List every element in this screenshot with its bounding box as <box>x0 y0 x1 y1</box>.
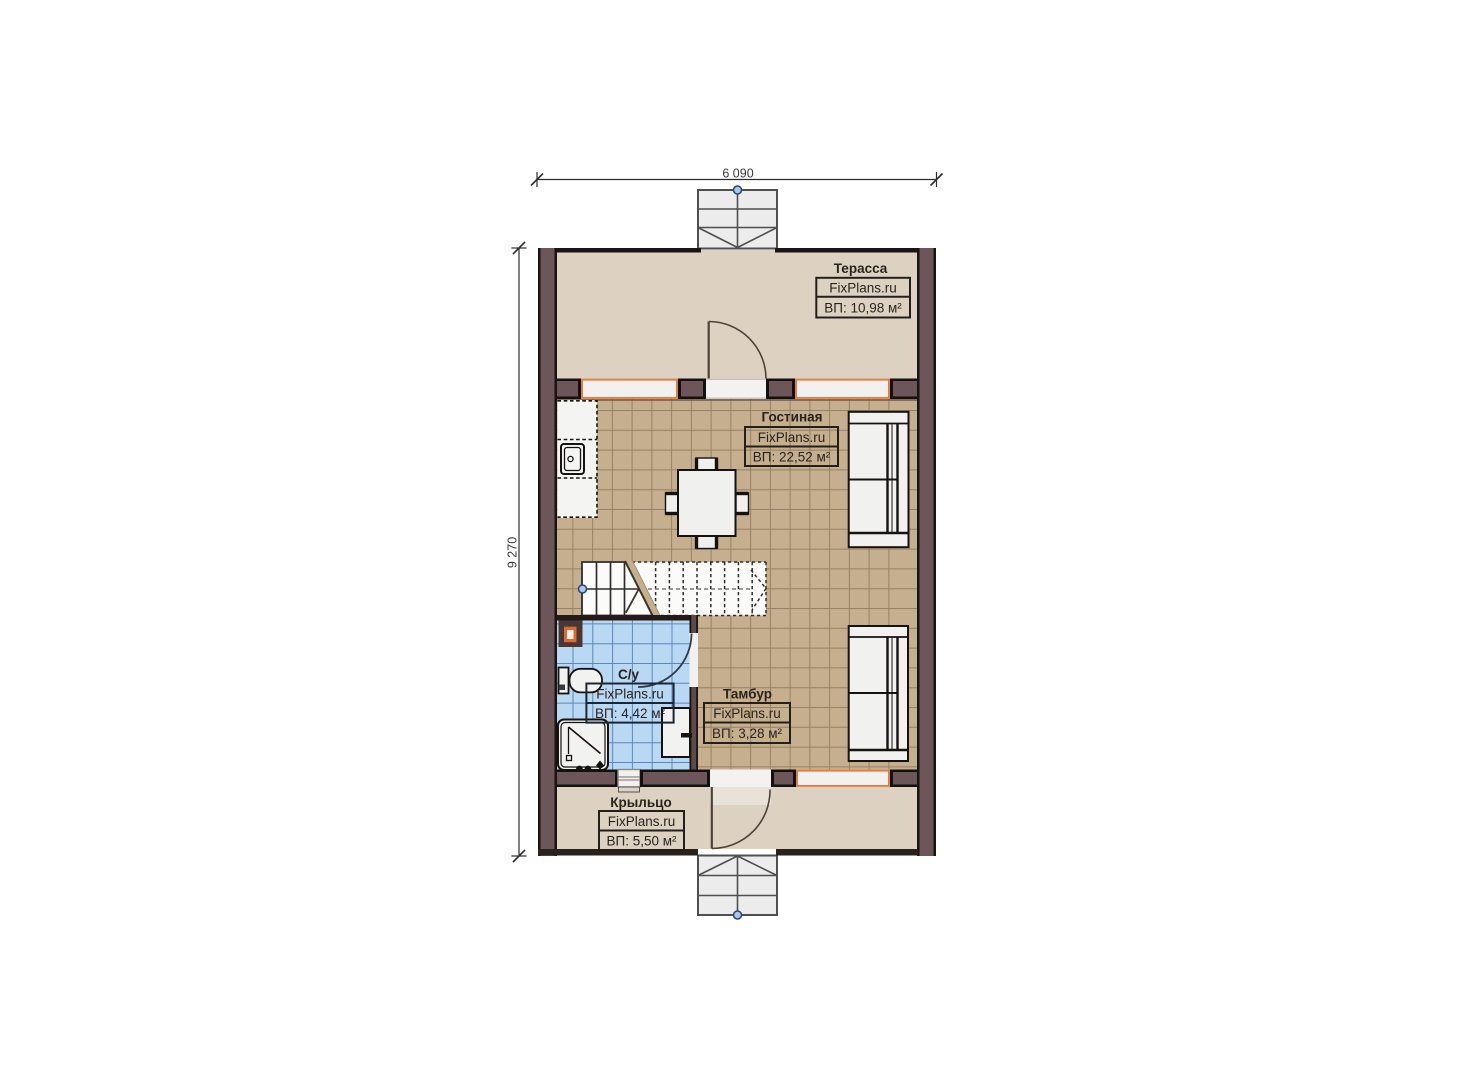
svg-text:FixPlans.ru: FixPlans.ru <box>596 687 664 702</box>
svg-text:FixPlans.ru: FixPlans.ru <box>758 430 826 445</box>
svg-text:6 090: 6 090 <box>722 167 753 181</box>
svg-text:Терасса: Терасса <box>834 261 888 276</box>
svg-text:ВП: 4,42 м²: ВП: 4,42 м² <box>595 706 666 721</box>
svg-text:Тамбур: Тамбур <box>723 687 772 702</box>
svg-text:ВП: 5,50 м²: ВП: 5,50 м² <box>606 834 677 849</box>
svg-text:FixPlans.ru: FixPlans.ru <box>829 281 897 296</box>
svg-text:9 270: 9 270 <box>506 537 520 568</box>
svg-text:ВП: 10,98 м²: ВП: 10,98 м² <box>824 301 902 316</box>
svg-text:Крыльцо: Крыльцо <box>610 795 671 810</box>
svg-text:С/у: С/у <box>618 667 640 682</box>
svg-text:FixPlans.ru: FixPlans.ru <box>713 706 781 721</box>
svg-text:FixPlans.ru: FixPlans.ru <box>608 814 676 829</box>
svg-text:ВП: 3,28 м²: ВП: 3,28 м² <box>712 726 783 741</box>
svg-text:Гостиная: Гостиная <box>761 410 822 425</box>
svg-text:ВП: 22,52 м²: ВП: 22,52 м² <box>753 450 831 465</box>
